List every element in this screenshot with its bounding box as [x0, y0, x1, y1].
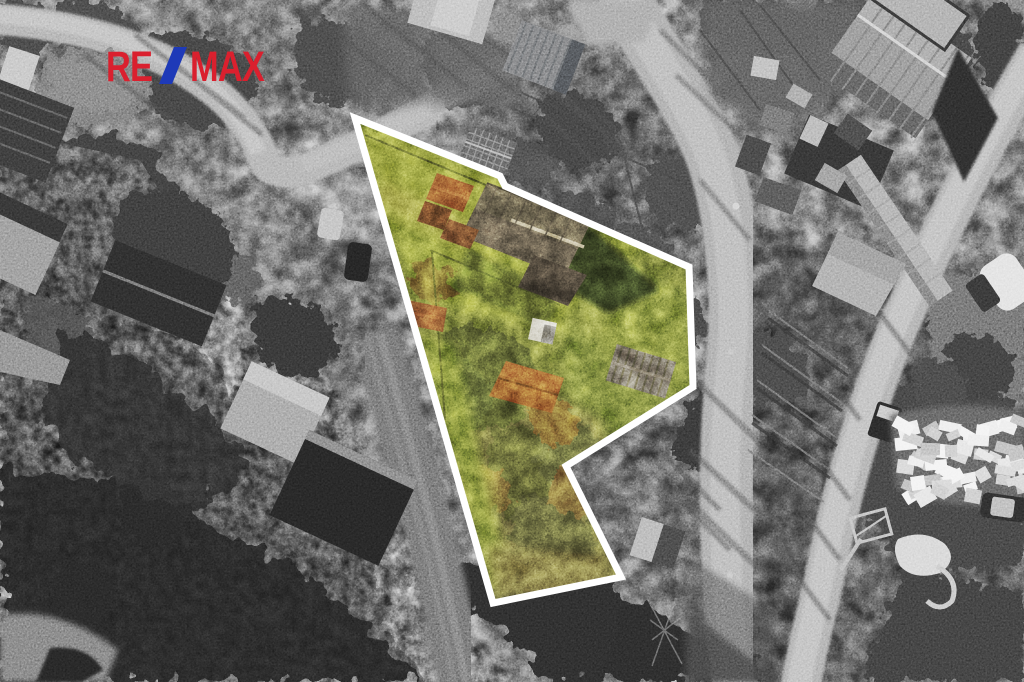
svg-text:RE: RE [106, 43, 152, 90]
svg-text:MAX: MAX [190, 43, 265, 90]
